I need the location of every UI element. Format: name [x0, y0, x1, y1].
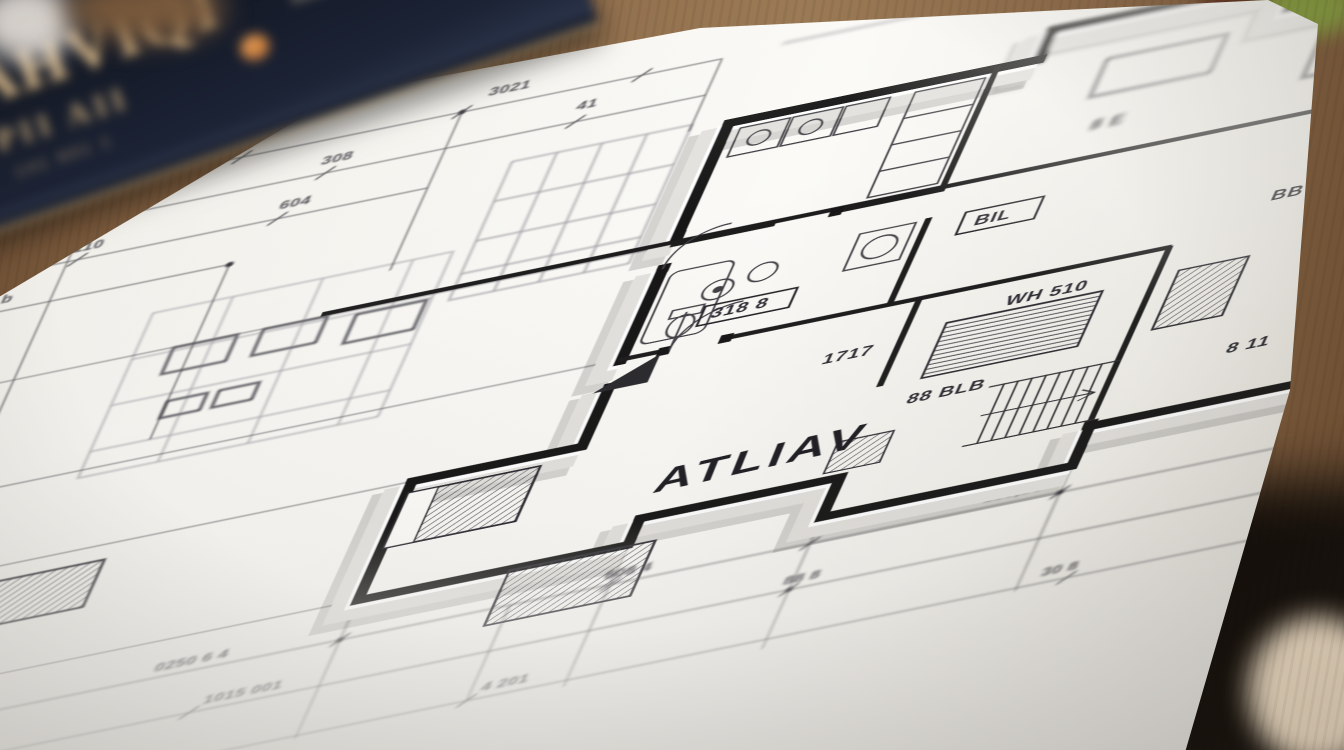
- photo-vignette: [0, 0, 1344, 750]
- photo-of-floorplan: 304 450 3021 88 10 308 41 7110 604 05 b: [0, 0, 1344, 750]
